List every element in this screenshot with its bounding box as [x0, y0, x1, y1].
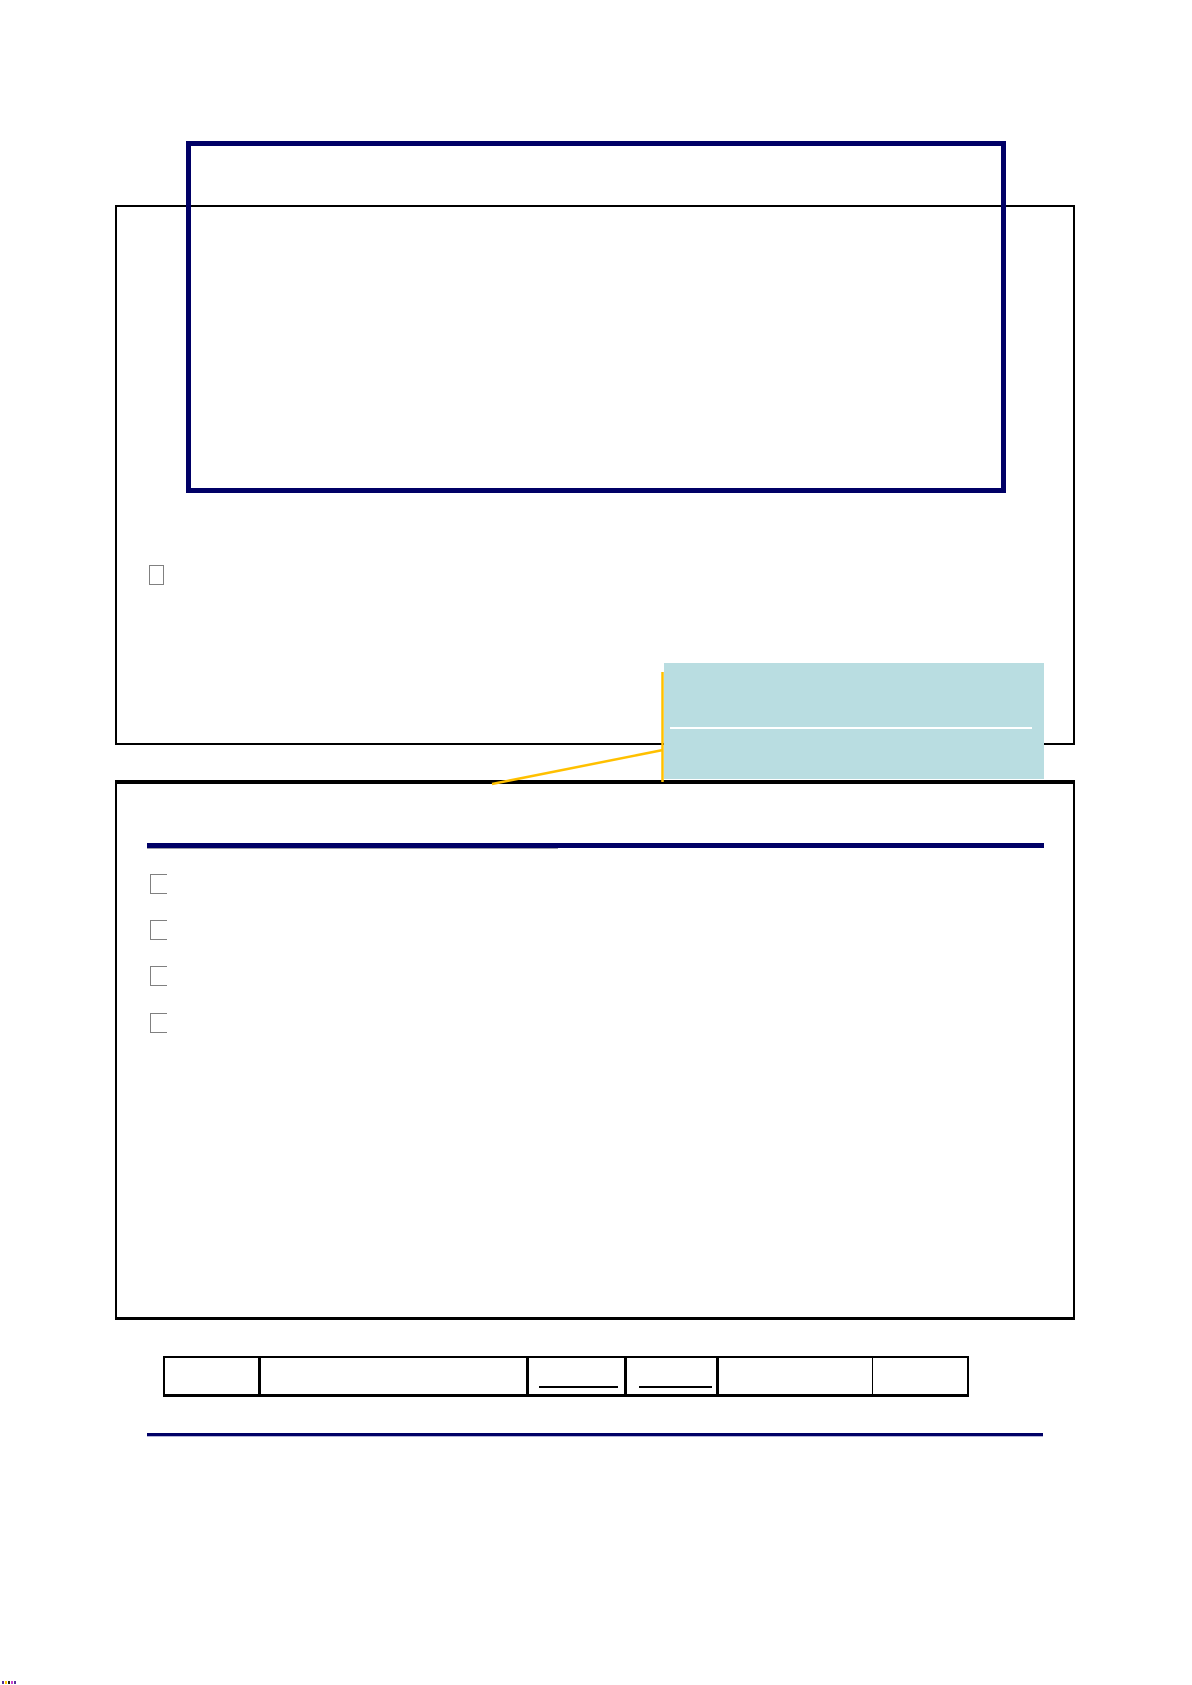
footer-table-cell-4 [627, 1358, 720, 1394]
footer-table-cell-3 [529, 1358, 627, 1394]
footer-rule-light-edge [147, 1436, 1043, 1437]
footer-blank-field-1[interactable] [539, 1386, 618, 1388]
title-frame [186, 141, 1006, 493]
lower-form-box [115, 780, 1075, 1320]
callout-blank-line[interactable] [670, 727, 1032, 729]
leader-diagonal-segment [492, 750, 663, 784]
lower-checkbox-3[interactable] [150, 966, 167, 986]
footer-table-cell-5 [719, 1358, 873, 1394]
lower-checkbox-4[interactable] [150, 1013, 167, 1033]
footer-table-cell-2 [261, 1358, 530, 1394]
footer-table [163, 1356, 969, 1397]
lower-checkbox-2[interactable] [150, 920, 167, 940]
corner-print-mark [2, 1681, 16, 1684]
footer-table-cell-6 [873, 1358, 967, 1394]
section-heading-rule-shadow [147, 848, 558, 849]
lower-checkbox-1[interactable] [150, 874, 167, 894]
footer-blank-field-2[interactable] [639, 1386, 712, 1388]
footer-table-cell-1 [165, 1358, 261, 1394]
callout-highlight-box [664, 663, 1044, 779]
document-page [0, 0, 1192, 1685]
upper-checkbox[interactable] [149, 565, 164, 585]
